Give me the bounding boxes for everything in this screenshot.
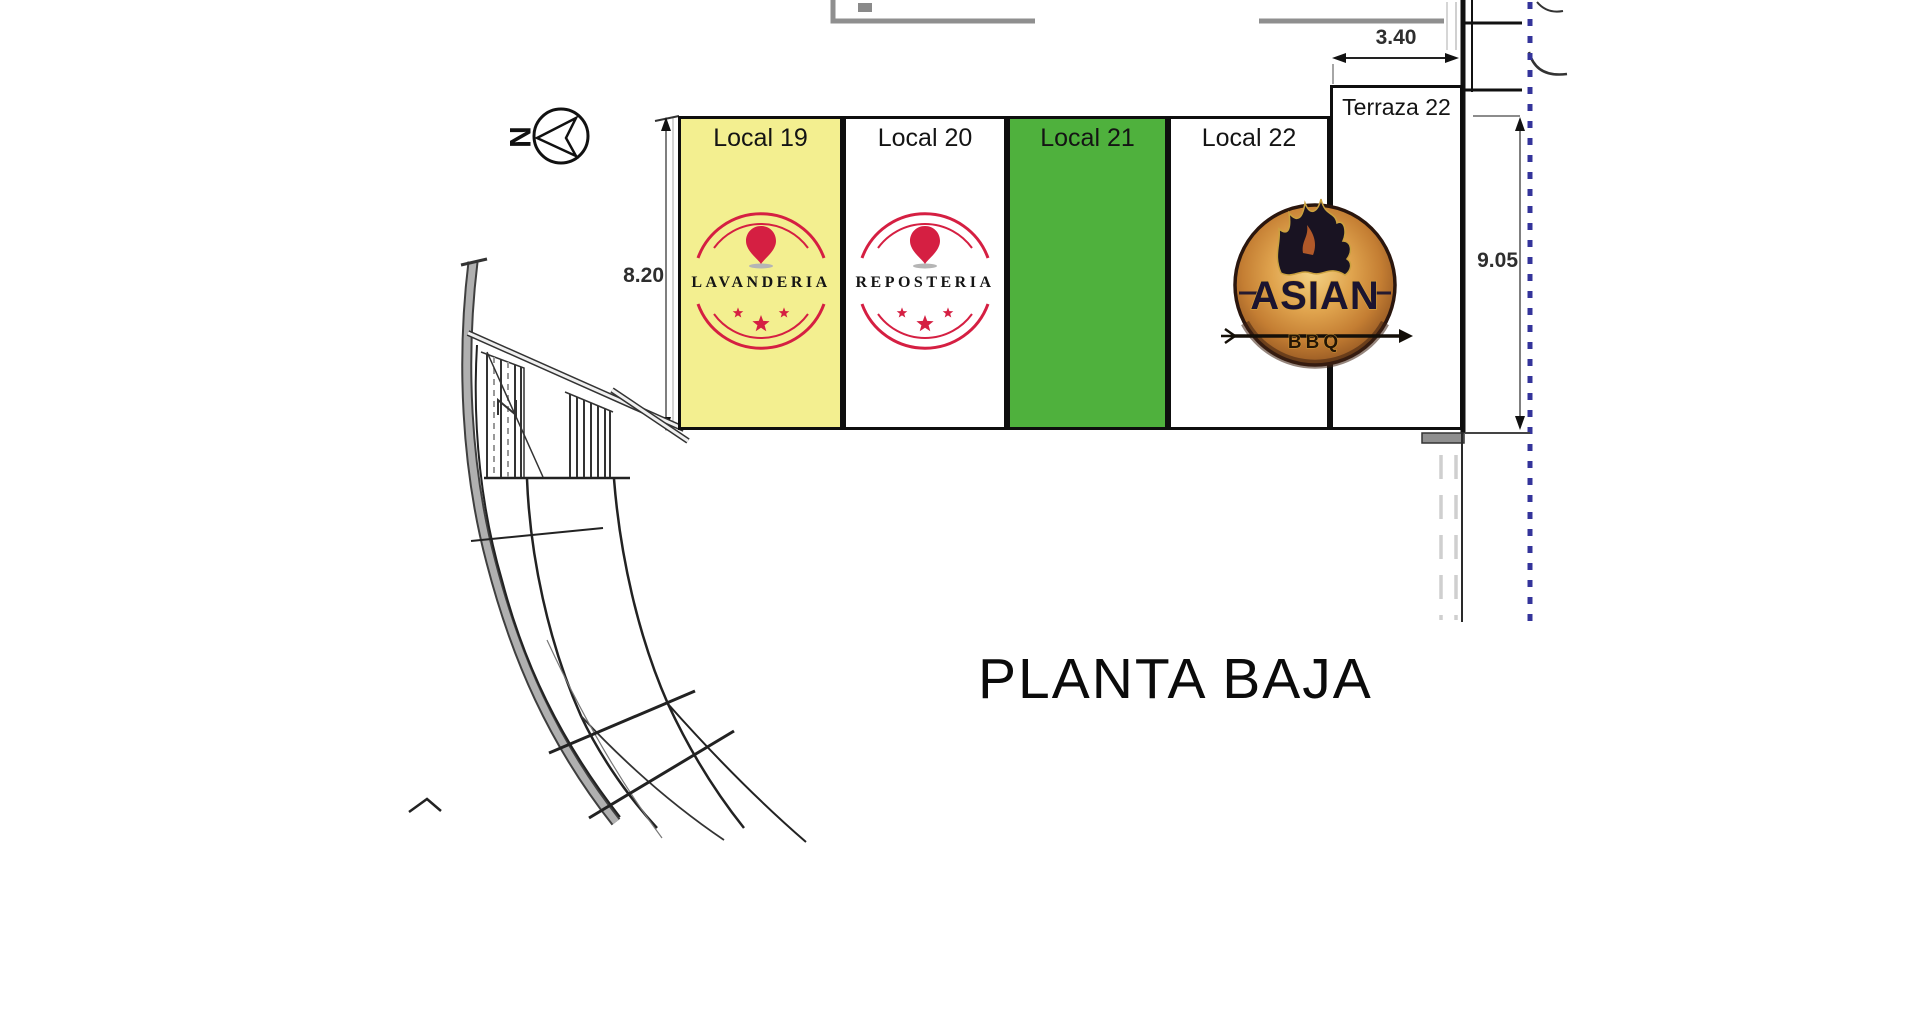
top-wall-lines [833,0,1444,21]
north-arrow-icon [537,118,576,156]
unit-label-terraza-22: Terraza 22 [1333,94,1460,121]
location-pin-icon [746,226,776,264]
unit-local-20: Local 20 REPOSTERIA [843,116,1007,430]
unit-local-22: Local 22 ASIAN BBQ [1168,116,1330,430]
unit-label-local-21: Local 21 [1010,124,1165,153]
compass-letter: N [505,126,538,148]
unit-local-19: Local 19 LAVANDERIA [678,116,843,430]
lavanderia-stamp-text: LAVANDERIA [691,274,830,291]
dashed-guides [1441,455,1456,620]
north-compass: N [505,109,589,163]
reposteria-stamp-logo: REPOSTERIA [850,206,1000,356]
door-arcs [1529,2,1567,75]
asian-logo-subtitle: BBQ [1288,332,1342,353]
dimension-height-right: 9.05 [1466,249,1518,273]
plan-title: PLANTA BAJA [978,646,1373,712]
pin-shadow [749,264,773,269]
stamp-stars-icon [897,307,954,331]
reposteria-stamp-text: REPOSTERIA [855,274,994,291]
floorplan: N [0,0,1920,1025]
lavanderia-stamp-logo: LAVANDERIA [686,206,836,356]
dimension-width-terraza: 3.40 [1368,26,1424,50]
unit-local-21: Local 21 [1007,116,1168,430]
asian-logo-title: ASIAN [1250,274,1379,318]
unit-label-local-22: Local 22 [1171,124,1327,153]
asian-bbq-logo: ASIAN BBQ [1215,193,1415,383]
caret-mark [409,799,441,812]
pin-shadow [913,264,937,269]
dim-line-right [1465,117,1530,433]
stamp-stars-icon [732,307,789,331]
location-pin-icon [910,226,940,264]
unit-label-local-20: Local 20 [846,124,1004,153]
unit-label-local-19: Local 19 [681,124,840,153]
dimension-height-left: 8.20 [612,264,664,288]
